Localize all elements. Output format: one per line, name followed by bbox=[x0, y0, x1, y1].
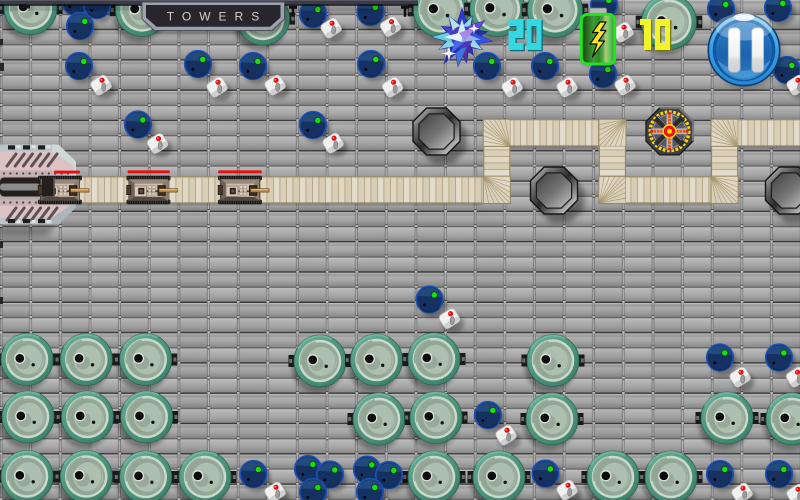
svg-text:TOWERS: TOWERS bbox=[167, 10, 267, 24]
